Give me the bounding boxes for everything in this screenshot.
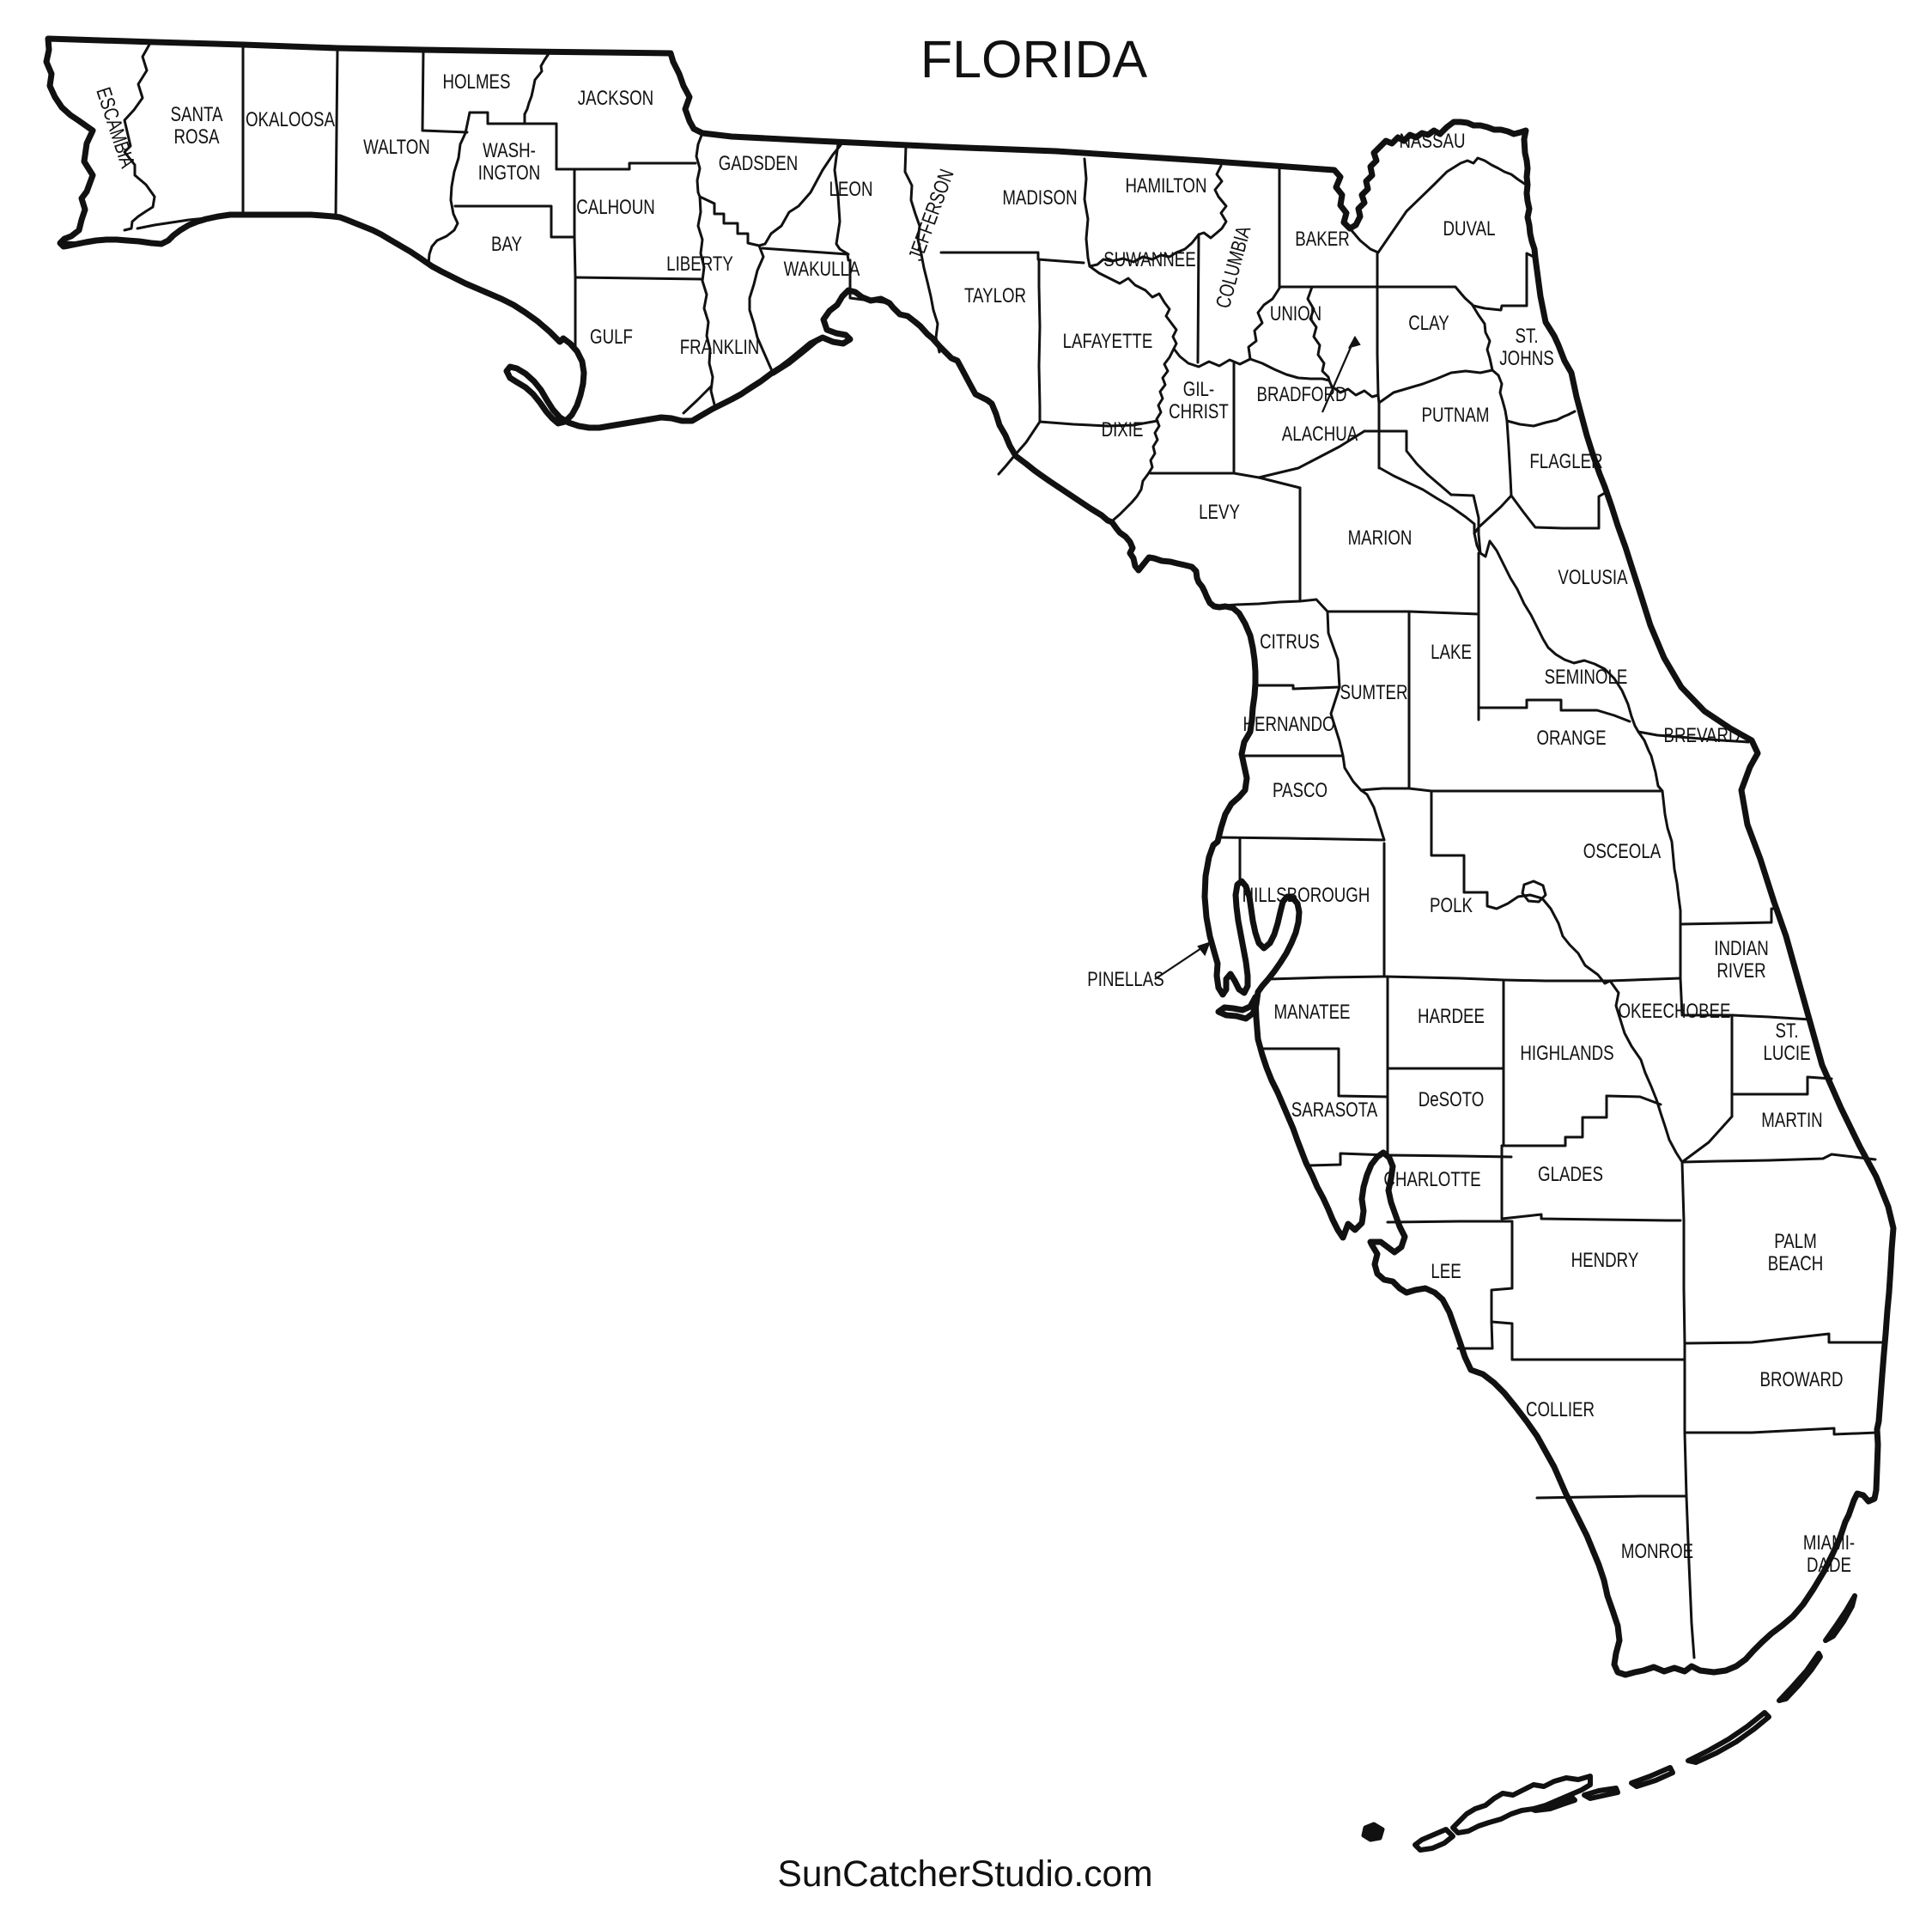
svg-text:LIBERTY: LIBERTY xyxy=(666,253,733,276)
svg-text:PASCO: PASCO xyxy=(1273,779,1327,802)
svg-text:LEVY: LEVY xyxy=(1199,501,1240,524)
svg-text:GADSDEN: GADSDEN xyxy=(719,152,799,175)
svg-text:SARASOTA: SARASOTA xyxy=(1291,1098,1378,1122)
svg-text:LAKE: LAKE xyxy=(1431,641,1472,664)
svg-text:OKALOOSA: OKALOOSA xyxy=(246,108,336,131)
svg-text:DUVAL: DUVAL xyxy=(1443,217,1495,240)
svg-text:FRANKLIN: FRANKLIN xyxy=(680,336,760,359)
svg-text:ORANGE: ORANGE xyxy=(1536,727,1606,750)
svg-text:BAKER: BAKER xyxy=(1295,228,1349,251)
svg-text:MIAMI-: MIAMI- xyxy=(1803,1531,1855,1555)
svg-text:INDIAN: INDIAN xyxy=(1714,937,1768,960)
svg-text:CITRUS: CITRUS xyxy=(1260,630,1320,654)
svg-text:CHRIST: CHRIST xyxy=(1169,400,1229,423)
svg-text:HERNANDO: HERNANDO xyxy=(1242,713,1334,736)
svg-text:FLORIDA: FLORIDA xyxy=(920,30,1148,88)
svg-text:PINELLAS: PINELLAS xyxy=(1087,968,1163,991)
svg-text:SUMTER: SUMTER xyxy=(1340,681,1407,704)
svg-text:OKEECHOBEE: OKEECHOBEE xyxy=(1618,1000,1730,1023)
svg-text:BREVARD: BREVARD xyxy=(1663,724,1740,747)
svg-text:JACKSON: JACKSON xyxy=(578,87,653,110)
svg-text:PALM: PALM xyxy=(1774,1230,1817,1253)
svg-text:GULF: GULF xyxy=(590,326,633,349)
svg-text:BRADFORD: BRADFORD xyxy=(1256,383,1346,406)
svg-text:HILLSBOROUGH: HILLSBOROUGH xyxy=(1242,884,1370,907)
svg-text:CLAY: CLAY xyxy=(1408,312,1449,335)
svg-text:FLAGLER: FLAGLER xyxy=(1529,450,1602,473)
svg-text:NASSAU: NASSAU xyxy=(1400,130,1466,153)
svg-text:ALACHUA: ALACHUA xyxy=(1282,423,1358,446)
svg-text:LEON: LEON xyxy=(829,178,873,201)
svg-text:HENDRY: HENDRY xyxy=(1571,1249,1639,1272)
svg-text:DeSOTO: DeSOTO xyxy=(1419,1088,1485,1111)
svg-text:INGTON: INGTON xyxy=(478,161,540,185)
svg-text:BEACH: BEACH xyxy=(1768,1252,1823,1275)
svg-text:SUWANNEE: SUWANNEE xyxy=(1103,248,1195,271)
svg-text:VOLUSIA: VOLUSIA xyxy=(1558,566,1628,589)
svg-text:DADE: DADE xyxy=(1807,1554,1851,1577)
svg-text:LEE: LEE xyxy=(1431,1260,1461,1283)
svg-text:MONROE: MONROE xyxy=(1621,1540,1693,1563)
svg-text:COLLIER: COLLIER xyxy=(1526,1398,1595,1421)
svg-text:TAYLOR: TAYLOR xyxy=(964,284,1026,307)
svg-text:WASH-: WASH- xyxy=(483,139,536,162)
svg-text:SEMINOLE: SEMINOLE xyxy=(1545,666,1628,689)
svg-text:GIL-: GIL- xyxy=(1183,378,1214,401)
svg-text:BROWARD: BROWARD xyxy=(1759,1368,1843,1391)
svg-text:PUTNAM: PUTNAM xyxy=(1421,404,1489,427)
svg-text:LUCIE: LUCIE xyxy=(1763,1042,1810,1065)
svg-text:HARDEE: HARDEE xyxy=(1418,1005,1485,1028)
svg-text:SANTA: SANTA xyxy=(170,103,223,126)
svg-text:ST.: ST. xyxy=(1515,325,1538,348)
svg-text:POLK: POLK xyxy=(1430,894,1473,917)
svg-text:MANATEE: MANATEE xyxy=(1273,1001,1350,1024)
svg-text:RIVER: RIVER xyxy=(1716,959,1765,983)
svg-text:ROSA: ROSA xyxy=(173,125,220,149)
svg-text:MADISON: MADISON xyxy=(1002,186,1077,210)
svg-text:MARION: MARION xyxy=(1348,526,1413,550)
svg-text:WAKULLA: WAKULLA xyxy=(784,258,860,281)
svg-text:OSCEOLA: OSCEOLA xyxy=(1583,840,1662,863)
svg-text:HAMILTON: HAMILTON xyxy=(1126,174,1207,198)
svg-text:UNION: UNION xyxy=(1270,302,1321,326)
svg-text:BAY: BAY xyxy=(491,233,522,256)
svg-text:LAFAYETTE: LAFAYETTE xyxy=(1063,330,1153,353)
svg-text:HIGHLANDS: HIGHLANDS xyxy=(1520,1042,1613,1065)
svg-text:DIXIE: DIXIE xyxy=(1102,418,1144,441)
svg-text:MARTIN: MARTIN xyxy=(1761,1109,1822,1132)
svg-text:WALTON: WALTON xyxy=(363,136,430,159)
svg-text:JOHNS: JOHNS xyxy=(1499,347,1553,370)
svg-text:ST.: ST. xyxy=(1775,1019,1798,1043)
svg-text:CHARLOTTE: CHARLOTTE xyxy=(1383,1168,1480,1191)
svg-text:CALHOUN: CALHOUN xyxy=(576,196,655,219)
svg-text:SunCatcherStudio.com: SunCatcherStudio.com xyxy=(777,1854,1152,1895)
svg-text:GLADES: GLADES xyxy=(1538,1163,1603,1186)
svg-text:HOLMES: HOLMES xyxy=(442,70,510,94)
